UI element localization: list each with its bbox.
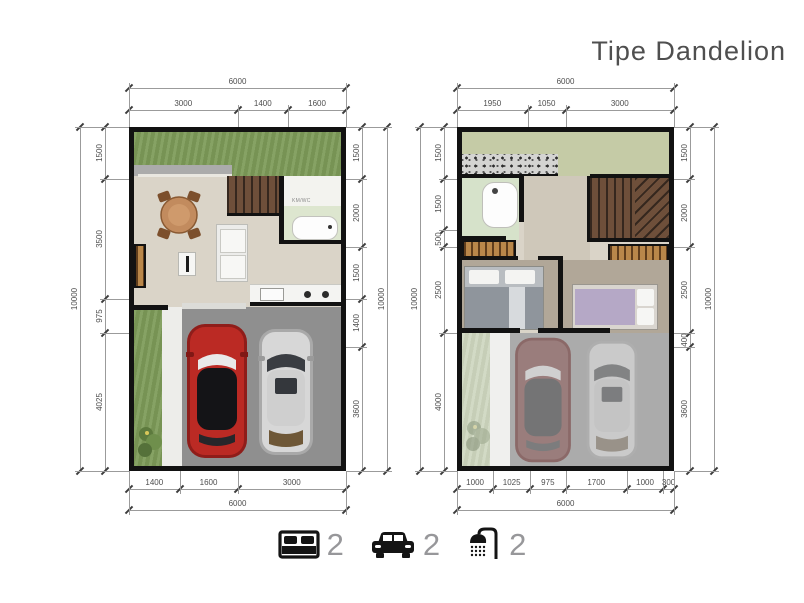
dimension-label: 2000 <box>352 193 362 233</box>
dimension-label: 400 <box>680 320 690 360</box>
dimension-label: 6000 <box>218 77 258 87</box>
dimension-line <box>129 510 346 511</box>
pillow <box>637 289 654 306</box>
dimension-label: 1050 <box>527 99 567 109</box>
dimension-label: 1500 <box>352 133 362 173</box>
side-yard-grass-faded <box>462 333 490 466</box>
hallway-floor <box>524 176 590 260</box>
dimension-label: 4000 <box>434 382 444 422</box>
dimension-extension <box>674 247 695 248</box>
bathroom-wall-bottom <box>284 240 341 244</box>
car-count: 2 <box>423 529 440 560</box>
dimension-extension <box>288 105 289 127</box>
bedroom-wall <box>462 256 518 260</box>
dimension-label: 10000 <box>410 279 420 319</box>
bathtub-drain <box>328 225 332 229</box>
dimension-extension <box>439 333 457 334</box>
pillow <box>505 270 535 284</box>
legend: 2 2 <box>0 527 804 561</box>
stair-flight <box>590 178 635 238</box>
dimension-label: 1600 <box>189 478 229 488</box>
dimension-label: 3600 <box>680 389 690 429</box>
dimension-label: 3000 <box>163 99 203 109</box>
dimension-label: 1500 <box>680 133 690 173</box>
bedroom-divider-wall <box>558 256 563 332</box>
tv-cabinet <box>178 252 196 276</box>
dimension-label: 1025 <box>492 478 532 488</box>
dimension-extension <box>674 105 675 127</box>
dimension-line <box>387 127 388 471</box>
bed-1 <box>464 266 544 330</box>
car-red <box>186 320 248 462</box>
pillow <box>637 308 654 325</box>
dimension-extension <box>439 179 457 180</box>
dimension-line <box>457 510 674 511</box>
dimension-extension <box>346 247 367 248</box>
dimension-label: 300 <box>649 478 689 488</box>
dimension-label: 2000 <box>680 193 690 233</box>
dimension-extension <box>457 105 458 127</box>
gravel-strip <box>462 154 558 176</box>
dimension-line <box>80 127 81 471</box>
floorplan-canvas: Tipe Dandelion KM/WC <box>0 0 804 603</box>
garage-wall <box>134 305 168 310</box>
stove-burner <box>322 291 329 298</box>
walkway-faded <box>490 333 510 466</box>
dimension-label: 2500 <box>680 270 690 310</box>
stove-burner <box>304 291 311 298</box>
sofa-cushion <box>220 229 246 253</box>
dimension-label: 6000 <box>218 499 258 509</box>
page-title: Tipe Dandelion <box>591 36 786 67</box>
bedroom-wall <box>538 256 558 260</box>
dimension-line <box>420 127 421 471</box>
carport-floor-faded <box>510 333 669 466</box>
sheet-fold <box>509 287 525 329</box>
staircase-upper <box>590 178 669 238</box>
sofa-cushion <box>220 255 246 279</box>
shower-count: 2 <box>509 529 526 560</box>
pillow <box>469 270 499 284</box>
dimension-label: 10000 <box>377 279 387 319</box>
tv <box>186 256 189 272</box>
dining-table <box>150 188 208 242</box>
dimension-label: 1950 <box>472 99 512 109</box>
dimension-label: 3500 <box>95 219 105 259</box>
dimension-label: 4025 <box>95 382 105 422</box>
dimension-extension <box>129 105 130 127</box>
dimension-line <box>457 88 674 89</box>
bed-icon <box>278 530 320 559</box>
dimension-extension <box>346 299 367 300</box>
blanket <box>465 287 543 329</box>
dimension-extension <box>100 179 129 180</box>
stair-wall <box>587 176 590 240</box>
staircase <box>227 176 281 216</box>
bathtub-drain <box>492 188 498 194</box>
dimension-extension <box>346 179 367 180</box>
stair-winder <box>635 178 669 238</box>
bathroom-label: KM/WC <box>292 198 311 204</box>
dimension-label: 1500 <box>434 133 444 173</box>
dimension-extension <box>439 127 457 128</box>
dimension-extension <box>238 471 239 494</box>
dimension-label: 6000 <box>546 499 586 509</box>
dimension-label: 500 <box>434 219 444 259</box>
legend-showers: 2 <box>466 527 526 561</box>
kitchen-wall <box>250 302 341 306</box>
dimension-label: 3000 <box>272 478 312 488</box>
dimension-extension <box>346 471 392 472</box>
dimension-extension <box>439 471 457 472</box>
dimension-extension <box>674 471 675 515</box>
dimension-line <box>129 88 346 89</box>
shower-icon <box>466 527 502 561</box>
dimension-extension <box>457 471 458 515</box>
kitchen-counter <box>250 284 341 304</box>
dimension-label: 1700 <box>576 478 616 488</box>
dimension-label: 6000 <box>546 77 586 87</box>
dimension-label: 1400 <box>134 478 174 488</box>
dimension-label: 1400 <box>243 99 283 109</box>
front-wall-window <box>138 174 232 177</box>
dimension-extension <box>674 179 695 180</box>
dimension-label: 1000 <box>455 478 495 488</box>
blanket <box>575 289 635 325</box>
dimension-extension <box>180 471 181 494</box>
dimension-extension <box>100 471 129 472</box>
plant <box>138 424 162 460</box>
dimension-label: 1600 <box>297 99 337 109</box>
bedroom-count: 2 <box>327 529 344 560</box>
bed-2 <box>572 284 658 330</box>
dimension-line <box>714 127 715 471</box>
dimension-label: 10000 <box>704 279 714 319</box>
car-icon <box>370 529 416 559</box>
legend-bedrooms: 2 <box>278 529 344 560</box>
dimension-extension <box>129 471 130 515</box>
dimension-extension <box>674 471 719 472</box>
dimension-label: 2500 <box>434 270 444 310</box>
dimension-extension <box>674 127 719 128</box>
dimension-label: 3000 <box>600 99 640 109</box>
dimension-label: 1500 <box>352 253 362 293</box>
dimension-extension <box>238 105 239 127</box>
sofa <box>216 224 248 282</box>
dimension-extension <box>346 471 347 515</box>
dimension-extension <box>346 347 367 348</box>
dimension-label: 1500 <box>95 133 105 173</box>
dimension-extension <box>346 127 392 128</box>
legend-cars: 2 <box>370 529 440 560</box>
dimension-label: 1400 <box>352 303 362 343</box>
kitchen-sink <box>260 288 284 301</box>
dimension-label: 975 <box>95 296 105 336</box>
ground-floor-plan: KM/WC <box>129 127 346 471</box>
dimension-extension <box>346 105 347 127</box>
walkway <box>162 307 182 466</box>
dimension-label: 3600 <box>352 389 362 429</box>
dimension-label: 10000 <box>70 279 80 319</box>
stair-wall-bottom <box>587 238 669 242</box>
bathtub-upper <box>482 182 518 228</box>
side-cabinet <box>134 244 146 288</box>
car-silver <box>258 326 314 458</box>
dimension-label: 975 <box>528 478 568 488</box>
dimension-extension <box>100 127 129 128</box>
upper-floor-plan <box>457 127 674 471</box>
carport-step <box>182 303 246 309</box>
